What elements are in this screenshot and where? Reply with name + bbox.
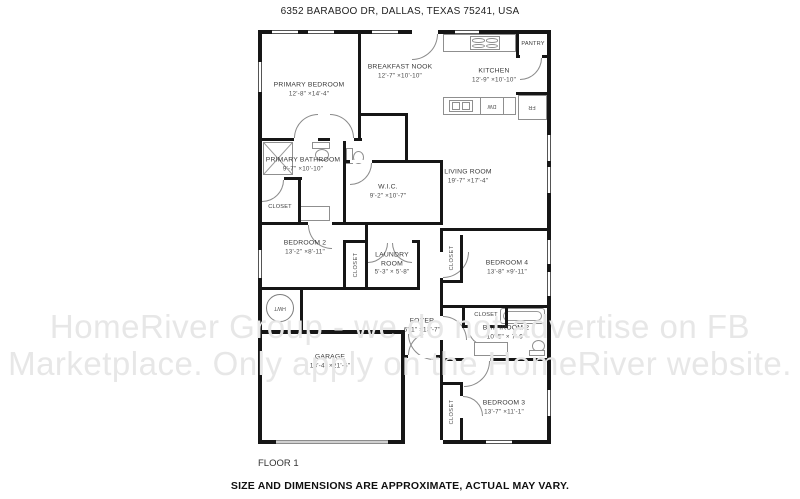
room-dims: 9'-7" ×10'-10" — [266, 165, 341, 174]
door-opening — [294, 138, 318, 141]
room-name: LIVING ROOM — [444, 169, 492, 178]
room-name: CLOSET — [474, 311, 498, 320]
door-arc — [262, 180, 284, 202]
room-label-garage: GARAGE 18'-4" ×21'-6" — [310, 354, 350, 371]
fridge-label: FR — [528, 104, 535, 110]
room-name: FOYER — [404, 318, 441, 327]
garage-door — [276, 440, 388, 444]
wall — [258, 330, 405, 334]
window — [547, 240, 551, 264]
room-name: W.I.C. — [370, 184, 407, 193]
window — [455, 30, 479, 34]
room-label-closet: CLOSET — [268, 203, 292, 212]
room-dims: 12'-8" ×14'-4" — [274, 90, 345, 99]
wall — [258, 30, 551, 34]
room-dims: 13'-8" ×9'-11" — [486, 268, 529, 277]
wall — [460, 235, 463, 282]
wall — [443, 280, 463, 283]
window — [372, 30, 398, 34]
door-arc — [464, 361, 490, 387]
room-name: PRIMARY BEDROOM — [274, 82, 345, 91]
wall — [405, 113, 408, 163]
room-name: BATHROOM 2 — [483, 325, 529, 334]
room-dims: 5'-3" × 5'-8" — [368, 268, 416, 277]
window — [547, 167, 551, 193]
door-arc — [443, 252, 469, 278]
room-name: CLOSET — [268, 203, 292, 212]
wall — [258, 30, 262, 444]
door-opening — [408, 355, 434, 358]
room-name: BEDROOM 4 — [486, 260, 529, 269]
bathroom-vanity — [474, 342, 508, 356]
window — [547, 272, 551, 296]
room-label-bedroom4: BEDROOM 4 13'-8" ×9'-11" — [486, 260, 529, 277]
wall — [343, 141, 346, 225]
room-label-primary-bedroom: PRIMARY BEDROOM 12'-8" ×14'-4" — [274, 82, 345, 99]
room-dims: 12'-9" ×10'-10" — [472, 76, 516, 85]
door-opening — [368, 240, 412, 243]
toilet-icon — [529, 350, 545, 356]
sink-basin — [462, 102, 470, 110]
door-arc — [350, 163, 372, 185]
room-label-closet-vertical: CLOSET — [449, 246, 455, 271]
room-dims: 13'-7" ×11'-1" — [483, 408, 526, 417]
door-opening — [262, 177, 284, 180]
water-heater-label: HWT — [274, 305, 286, 311]
room-dims: 12'-7" ×10'-10" — [368, 72, 433, 81]
room-label-laundry: LAUNDRY ROOM 5'-3" × 5'-8" — [368, 251, 416, 277]
room-dims: 6'-1" ×13'-7" — [404, 326, 441, 335]
wall — [258, 287, 420, 290]
door-opening — [464, 358, 490, 361]
window — [258, 62, 262, 92]
room-name: GARAGE — [310, 354, 350, 363]
wall — [516, 92, 551, 95]
door-opening — [412, 30, 438, 34]
room-dims: 18'-4" ×21'-6" — [310, 362, 350, 371]
toilet-icon — [312, 142, 330, 149]
floor-label: FLOOR 1 — [258, 458, 299, 469]
wall — [462, 305, 465, 327]
room-label-bedroom2: BEDROOM 2 13'-2" ×8'-11" — [284, 240, 327, 257]
wall — [358, 113, 408, 116]
dishwasher-label: DW — [488, 103, 497, 109]
disclaimer-text: SIZE AND DIMENSIONS ARE APPROXIMATE, ACT… — [0, 480, 800, 492]
wall — [401, 330, 405, 444]
door-opening — [330, 138, 354, 141]
room-label-wic: W.I.C. 9'-2" ×10'-7" — [370, 184, 407, 201]
window — [272, 30, 298, 34]
room-label-closet: CLOSET — [474, 311, 498, 320]
water-heater-icon: HWT — [266, 294, 294, 322]
room-name: BEDROOM 3 — [483, 400, 526, 409]
room-dims: 13'-2" ×8'-11" — [284, 248, 327, 257]
wall — [358, 30, 361, 141]
room-label-kitchen: KITCHEN 12'-9" ×10'-10" — [472, 68, 516, 85]
door-arc — [463, 396, 483, 416]
wall — [343, 240, 346, 290]
window — [547, 390, 551, 416]
door-arc — [520, 58, 542, 80]
stove-icon — [470, 36, 500, 50]
wall — [440, 305, 551, 308]
room-label-bathroom2: BATHROOM 2 10'-5" × 7'-6" — [483, 325, 529, 342]
door-opening — [460, 396, 463, 418]
wall — [258, 222, 443, 225]
wall — [440, 228, 551, 231]
wall — [417, 240, 420, 290]
room-label-closet-vertical: CLOSET — [449, 400, 455, 425]
door-arc — [412, 34, 438, 60]
wall — [300, 287, 303, 330]
room-name: KITCHEN — [472, 68, 516, 77]
room-name: LAUNDRY ROOM — [368, 251, 416, 268]
door-opening — [520, 55, 542, 58]
floor-plan: DW FR HWT PRIMARY BEDROOM 12'-8" ×14'-4"… — [0, 0, 800, 499]
door-arc — [330, 114, 354, 138]
room-label-foyer: FOYER 6'-1" ×13'-7" — [404, 318, 441, 335]
room-dims: 10'-5" × 7'-6" — [483, 333, 529, 342]
room-label-primary-bathroom: PRIMARY BATHROOM 9'-7" ×10'-10" — [266, 157, 341, 174]
room-name: PRIMARY BATHROOM — [266, 157, 341, 166]
window — [486, 440, 512, 444]
room-label-pantry: PANTRY — [521, 40, 544, 49]
room-label-closet-vertical: CLOSET — [353, 253, 359, 278]
window — [308, 30, 334, 34]
wall — [440, 160, 443, 225]
room-dims: 9'-2" ×10'-7" — [370, 192, 407, 201]
door-opening — [440, 252, 443, 278]
room-label-living-room: LIVING ROOM 19'-7" ×17'-4" — [444, 169, 492, 186]
sink-basin — [452, 102, 460, 110]
door-opening — [308, 222, 332, 225]
wall — [298, 177, 301, 225]
door-arc — [294, 114, 318, 138]
window — [547, 135, 551, 161]
window — [258, 250, 262, 278]
room-label-breakfast-nook: BREAKFAST NOOK 12'-7" ×10'-10" — [368, 64, 433, 81]
room-dims: 19'-7" ×17'-4" — [444, 177, 492, 186]
room-label-bedroom3: BEDROOM 3 13'-7" ×11'-1" — [483, 400, 526, 417]
wall — [440, 358, 551, 361]
room-name: BEDROOM 2 — [284, 240, 327, 249]
door-opening — [440, 316, 443, 340]
bathroom-vanity — [300, 206, 330, 221]
room-name: PANTRY — [521, 40, 544, 49]
room-name: BREAKFAST NOOK — [368, 64, 433, 73]
door-opening — [350, 160, 372, 163]
